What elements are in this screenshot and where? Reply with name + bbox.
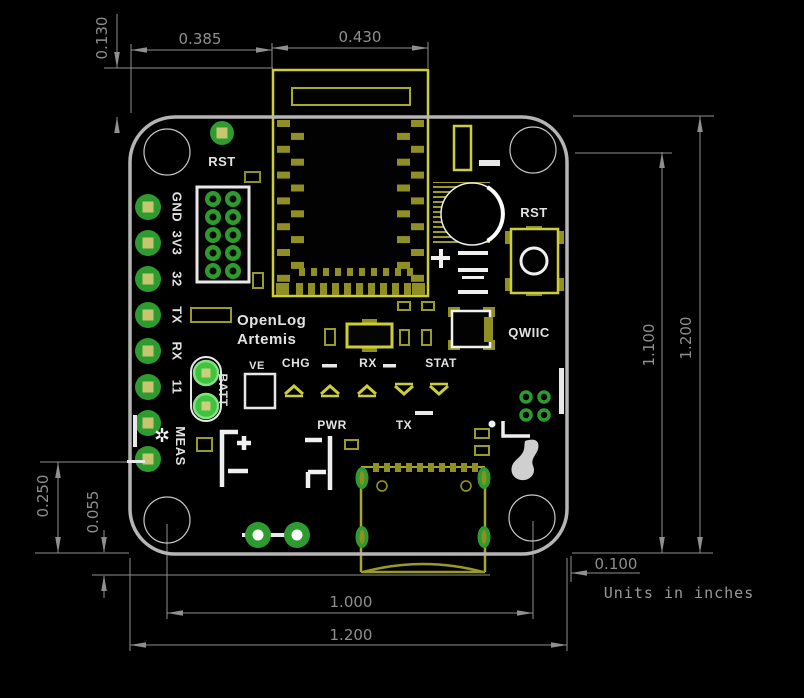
usb-pad xyxy=(461,463,467,472)
module-pad xyxy=(383,268,389,276)
reset-button-label: RST xyxy=(520,205,548,220)
breakout-pin-hole xyxy=(143,202,154,213)
breakout-pin-hole xyxy=(143,310,154,321)
module-pad xyxy=(411,120,424,127)
led-polarity-mark xyxy=(395,386,413,394)
dim-arrow xyxy=(659,152,665,168)
mounting-hole xyxy=(509,495,555,541)
qwiic-label: QWIIC xyxy=(508,325,550,340)
usb-pad xyxy=(384,463,390,472)
usb-alignment-hole xyxy=(377,481,387,491)
stat-led-label: STAT xyxy=(425,356,457,370)
silk-dot xyxy=(489,421,496,428)
led-polarity-mark xyxy=(285,386,303,394)
header-hole-drill xyxy=(230,250,237,257)
dim-arrow xyxy=(256,47,272,53)
sparkfun-flame-logo xyxy=(511,440,538,480)
dim-board-height: 1.200 xyxy=(677,317,695,360)
pwr-led-label: PWR xyxy=(317,418,347,432)
module-pad xyxy=(277,146,290,153)
module-pad xyxy=(411,172,424,179)
module-pad xyxy=(277,275,290,282)
header-hole-drill xyxy=(210,268,217,275)
breakout-pin-hole xyxy=(143,274,154,285)
battery-symbol xyxy=(431,249,488,294)
reset-pad-label: RST xyxy=(208,154,236,169)
module-pad xyxy=(404,283,411,295)
usb-pad xyxy=(373,463,379,472)
dim-arrow xyxy=(114,117,120,133)
usb-pad xyxy=(406,463,412,472)
module-pad xyxy=(291,185,304,192)
module-pad xyxy=(412,283,425,295)
module-pad xyxy=(397,185,410,192)
usb-alignment-hole xyxy=(461,481,471,491)
module-pad xyxy=(371,268,377,276)
tx-led-label: TX xyxy=(396,418,412,432)
dim-arrow xyxy=(697,116,703,132)
silk-dash xyxy=(415,411,433,415)
dim-arrow xyxy=(101,575,107,591)
silk-tick xyxy=(127,460,145,463)
chg-led-label: CHG xyxy=(282,356,310,370)
module-pad xyxy=(356,283,363,295)
led-polarity-mark xyxy=(430,386,448,394)
module-pad xyxy=(397,159,410,166)
pcb-dimension-drawing: RST RST QWIIC OpenLog Artemis VE CHG RX … xyxy=(0,0,804,698)
usb-pad xyxy=(428,463,434,472)
top-right-footprint xyxy=(454,126,471,170)
breakout-pin-hole xyxy=(143,346,154,357)
module-pad xyxy=(397,210,410,217)
module-pad xyxy=(411,223,424,230)
module-pad xyxy=(347,268,353,276)
header-hole-drill xyxy=(210,196,217,203)
edge-silk-bar xyxy=(559,368,564,414)
usb-pad xyxy=(417,463,423,472)
module-pad xyxy=(368,283,375,295)
module-pad xyxy=(291,210,304,217)
module-pad xyxy=(344,283,351,295)
module-pad xyxy=(335,268,341,276)
dim-arrow xyxy=(551,642,567,648)
crystal xyxy=(347,319,392,352)
module-pad xyxy=(397,133,410,140)
dim-usb-overhang-bottom: 0.055 xyxy=(84,491,102,534)
led-polarity-mark xyxy=(321,386,339,394)
pin-label-tx: TX xyxy=(170,306,185,324)
qwiic-connector xyxy=(448,307,495,350)
silk-dash xyxy=(322,364,337,368)
usb-pad xyxy=(472,463,478,472)
module-pad xyxy=(277,223,290,230)
board-name-line1: OpenLog xyxy=(237,312,306,329)
dim-arrow xyxy=(131,47,147,53)
reset-pad xyxy=(210,121,260,182)
reset-button xyxy=(505,226,564,296)
silk-tick xyxy=(133,415,137,447)
module-pad xyxy=(397,262,410,269)
header-hole-drill xyxy=(230,232,237,239)
programming-header xyxy=(197,187,249,282)
header-hole-drill xyxy=(210,250,217,257)
module-pad xyxy=(291,133,304,140)
dim-board-edge-to-module: 0.385 xyxy=(179,30,222,48)
mounting-hole xyxy=(510,127,556,173)
via-grid xyxy=(521,392,549,420)
bottom-jumper-pads xyxy=(242,522,310,548)
mounting-hole xyxy=(144,129,190,175)
module-pad xyxy=(291,262,304,269)
breakout-pins xyxy=(135,194,161,472)
silk-dash xyxy=(383,364,396,368)
dim-arrow xyxy=(412,45,428,51)
dim-arrow xyxy=(517,610,533,616)
header-hole-drill xyxy=(230,268,237,275)
meas-jumper-label: MEAS xyxy=(173,426,188,466)
usb-pad xyxy=(450,463,456,472)
pin-label-3v3: 3V3 xyxy=(170,231,185,256)
module-pad xyxy=(411,146,424,153)
board-name-line2: Artemis xyxy=(237,331,296,348)
rx-led-label: RX xyxy=(359,356,377,370)
dim-hole-spacing-bottom: 1.000 xyxy=(330,593,373,611)
module-pad xyxy=(311,268,317,276)
module-pad xyxy=(291,236,304,243)
dim-edge-offset-right: 0.100 xyxy=(595,555,638,573)
units-note: Units in inches xyxy=(604,584,754,602)
battery-label: BATT xyxy=(216,373,230,406)
drawing-canvas: RST RST QWIIC OpenLog Artemis VE CHG RX … xyxy=(0,0,804,698)
module-pad xyxy=(277,172,290,179)
module-pad xyxy=(277,120,290,127)
dim-module-width: 0.430 xyxy=(339,28,382,46)
battery-body-outline xyxy=(245,374,275,408)
module-pad xyxy=(296,283,303,295)
module-pad xyxy=(359,268,365,276)
dim-arrow xyxy=(697,537,703,553)
module-pad xyxy=(407,268,413,276)
capacitor xyxy=(433,160,503,245)
dim-arrow xyxy=(55,462,61,478)
module-pad xyxy=(277,249,290,256)
dim-arrow xyxy=(101,537,107,553)
module-pad xyxy=(397,236,410,243)
module-pad xyxy=(291,159,304,166)
usb-pad xyxy=(439,463,445,472)
module-pad xyxy=(277,197,290,204)
pin-label-rx: RX xyxy=(170,341,185,360)
header-hole-drill xyxy=(210,232,217,239)
dim-arrow xyxy=(272,45,288,51)
pin-label-gnd: GND xyxy=(170,192,185,222)
module-pad xyxy=(411,197,424,204)
breakout-pin-hole xyxy=(143,382,154,393)
usb-pad xyxy=(395,463,401,472)
dim-arrow xyxy=(55,537,61,553)
breakout-pin-hole xyxy=(143,418,154,429)
dim-arrow xyxy=(130,642,146,648)
dim-arrow xyxy=(167,610,183,616)
dim-board-width: 1.200 xyxy=(330,626,373,644)
dim-pin-to-bottom-edge: 0.250 xyxy=(34,475,52,518)
dim-arrow xyxy=(571,570,587,576)
module-pad xyxy=(411,249,424,256)
dim-arrow xyxy=(659,537,665,553)
led-polarity-marks xyxy=(285,384,448,396)
header-hole-drill xyxy=(210,214,217,221)
header-hole-drill xyxy=(230,196,237,203)
led-polarity-mark xyxy=(358,386,376,394)
header-hole-drill xyxy=(230,214,237,221)
breakout-pin-hole xyxy=(143,238,154,249)
pin-label-11: 11 xyxy=(170,380,185,395)
module-pad xyxy=(308,283,315,295)
module-pad xyxy=(332,283,339,295)
module-pad xyxy=(323,268,329,276)
artemis-module xyxy=(273,70,428,296)
module-pad xyxy=(276,283,289,295)
module-pad xyxy=(395,268,401,276)
dim-hole-to-bottom-edge: 1.100 xyxy=(640,324,658,367)
module-pad xyxy=(392,283,399,295)
dim-module-overhang-top: 0.130 xyxy=(93,17,111,60)
pin-label-32: 32 xyxy=(170,271,185,286)
module-pad xyxy=(299,268,305,276)
dim-arrow xyxy=(114,52,120,68)
module-pad xyxy=(320,283,327,295)
ve-label: VE xyxy=(249,360,265,372)
module-pad xyxy=(380,283,387,295)
